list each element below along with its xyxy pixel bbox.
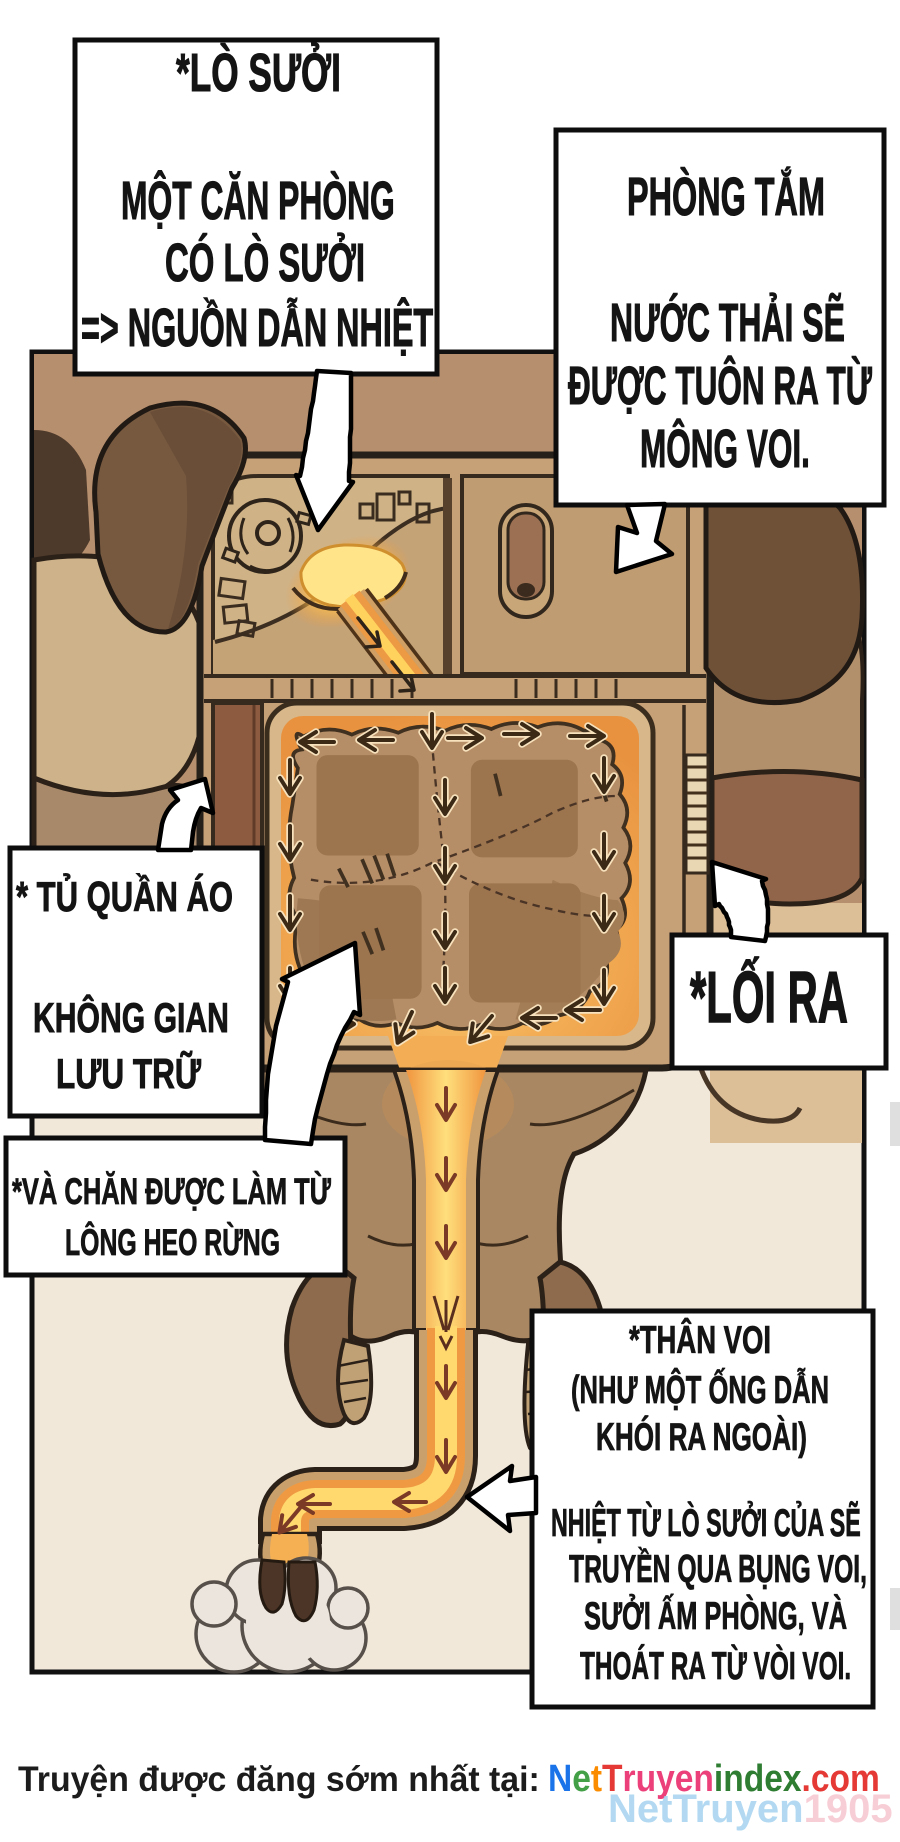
svg-text:*LÒ SƯỞI: *LÒ SƯỞI xyxy=(176,41,341,103)
svg-text:SƯỞI ẤM PHÒNG, VÀ: SƯỞI ẤM PHÒNG, VÀ xyxy=(584,1593,847,1637)
svg-text:* TỦ QUẦN ÁO: * TỦ QUẦN ÁO xyxy=(16,872,233,920)
svg-text:KHÔNG GIAN: KHÔNG GIAN xyxy=(33,993,229,1041)
svg-text:*LỐI RA: *LỐI RA xyxy=(690,957,848,1038)
svg-text:THOÁT RA TỪ VÒI VOI.: THOÁT RA TỪ VÒI VOI. xyxy=(580,1643,851,1687)
svg-text:MÔNG VOI.: MÔNG VOI. xyxy=(640,417,810,479)
svg-text:ĐƯỢC TUÔN RA TỪ: ĐƯỢC TUÔN RA TỪ xyxy=(568,354,872,416)
svg-text:TRUYỀN QUA BỤNG VOI,: TRUYỀN QUA BỤNG VOI, xyxy=(569,1546,867,1590)
svg-text:NetTruyen1905: NetTruyen1905 xyxy=(608,1787,893,1831)
svg-text:MỘT CĂN PHÒNG: MỘT CĂN PHÒNG xyxy=(121,169,395,231)
svg-text:CÓ LÒ SƯỞI: CÓ LÒ SƯỞI xyxy=(165,231,365,293)
svg-text:Truyện được đăng sớm nhất tại:: Truyện được đăng sớm nhất tại: xyxy=(18,1761,540,1800)
svg-text:*VÀ CHĂN ĐƯỢC LÀM TỪ: *VÀ CHĂN ĐƯỢC LÀM TỪ xyxy=(12,1170,331,1212)
svg-text:=> NGUỒN DẪN NHIỆT: => NGUỒN DẪN NHIỆT xyxy=(81,297,433,358)
svg-text:(NHƯ MỘT ỐNG DẪN: (NHƯ MỘT ỐNG DẪN xyxy=(571,1366,829,1411)
svg-text:NHIỆT TỪ LÒ SƯỞI CỦA SẼ: NHIỆT TỪ LÒ SƯỞI CỦA SẼ xyxy=(551,1501,861,1545)
svg-text:*THÂN VOI: *THÂN VOI xyxy=(629,1318,771,1362)
svg-text:LÔNG HEO RỪNG: LÔNG HEO RỪNG xyxy=(65,1221,280,1263)
svg-text:LƯU TRỮ: LƯU TRỮ xyxy=(56,1050,201,1098)
svg-text:KHÓI RA NGOÀI): KHÓI RA NGOÀI) xyxy=(596,1415,807,1460)
svg-text:NƯỚC THẢI SẼ: NƯỚC THẢI SẼ xyxy=(610,292,845,353)
svg-text:PHÒNG TẮM: PHÒNG TẮM xyxy=(627,166,825,227)
